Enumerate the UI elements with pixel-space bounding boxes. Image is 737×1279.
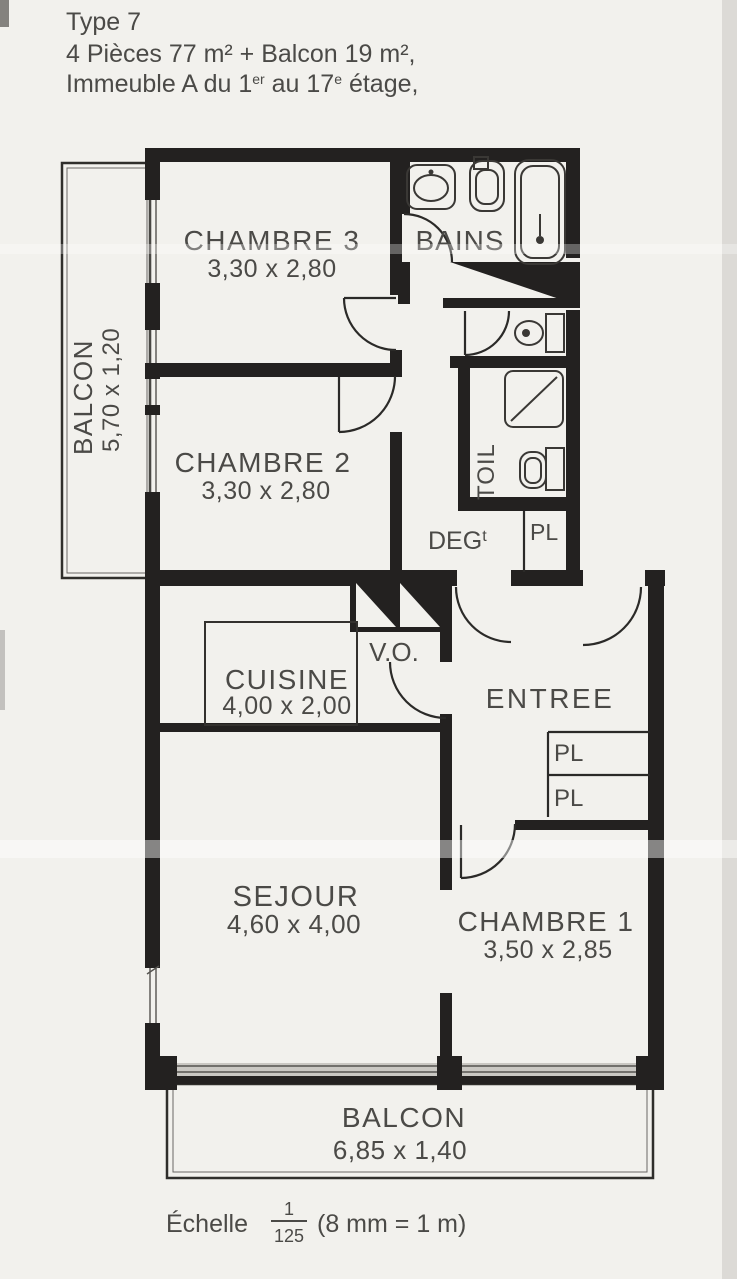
chambre1-label: CHAMBRE 1 [458,906,635,937]
placard2-label: PL [554,785,583,812]
chambre3-dims: 3,30 x 2,80 [207,255,336,283]
chambre1-glazing [462,1063,636,1077]
plan-building-line: Immeuble A du 1er au 17e étage, [66,70,418,98]
chambre2-label: CHAMBRE 2 [175,447,352,478]
left-balcony-dims: 5,70 x 1,20 [98,328,125,452]
plan-areas-line: 4 Pièces 77 m² + Balcon 19 m², [66,40,415,68]
bottom-balcony-dims: 6,85 x 1,40 [333,1135,467,1165]
placard1-label: PL [554,740,583,767]
cuisine-label: CUISINE [225,664,349,695]
scale-fraction-denominator: 125 [274,1226,304,1246]
entree-label: ENTREE [486,683,615,714]
bottom-balcony-label: BALCON [342,1102,466,1133]
plan-type-title: Type 7 [66,8,141,36]
left-balcony-label: BALCON [68,339,98,455]
chambre1-dims: 3,50 x 2,85 [483,936,612,964]
vide-ordures-label: V.O. [369,637,419,667]
deg-placard-label: PL [530,519,558,545]
scale-formula: (8 mm = 1 m) [317,1210,466,1238]
scan-corner-mark [0,0,9,27]
scan-crease [0,840,737,858]
scale-fraction-numerator: 1 [284,1199,294,1219]
scan-crease-2 [0,244,737,254]
sejour-glazing [177,1063,437,1077]
scan-left-mark [0,630,5,710]
toil-label: TOIL [473,443,500,500]
degagement-label: DEGt [428,527,487,555]
sejour-dims: 4,60 x 4,00 [227,909,361,939]
vide-ordures-unit [350,578,448,632]
floor-plan-drawing: Type 7 4 Pièces 77 m² + Balcon 19 m², Im… [0,0,737,1279]
floor-plan-page: Type 7 4 Pièces 77 m² + Balcon 19 m², Im… [0,0,737,1279]
cuisine-dims: 4,00 x 2,00 [222,692,351,720]
scan-edge-shade [722,0,737,1279]
chambre2-dims: 3,30 x 2,80 [201,477,330,505]
scale-label: Échelle [166,1209,248,1238]
